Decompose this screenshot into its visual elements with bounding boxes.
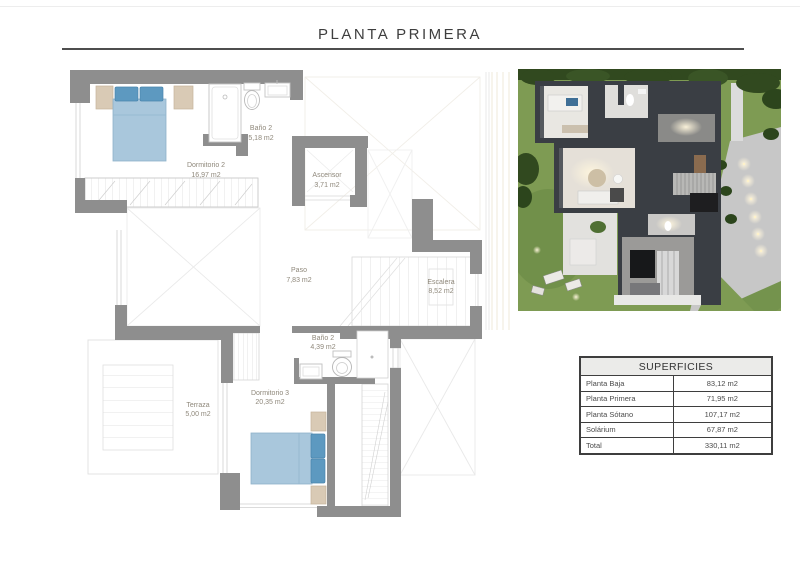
table-header-row: SUPERFICIES xyxy=(580,357,772,376)
pillow xyxy=(311,434,325,458)
surface-label: Planta Baja xyxy=(580,376,673,392)
surface-value: 83,12 m2 xyxy=(673,376,772,392)
title-divider xyxy=(62,48,744,50)
bathroom2-top-fixtures xyxy=(209,80,290,142)
table-row: Planta Baja 83,12 m2 xyxy=(580,376,772,392)
stairs xyxy=(340,257,478,326)
nightstand xyxy=(311,486,326,504)
render-3d-aerial xyxy=(518,69,781,311)
page-top-edge xyxy=(0,6,800,7)
nightstand xyxy=(96,86,113,109)
render-pendant-lamp xyxy=(614,175,623,184)
wardrobes xyxy=(85,178,388,506)
pillow xyxy=(311,459,325,483)
table-row: Planta Sótano 107,17 m2 xyxy=(580,407,772,423)
facade-strips xyxy=(486,72,509,330)
render-toilet xyxy=(665,221,672,231)
superficies-table-title: SUPERFICIES xyxy=(580,357,772,376)
floor-plan: Dormitorio 2 16,97 m2 Baño 2 5,18 m2 Asc… xyxy=(60,62,520,522)
surface-label: Planta Sótano xyxy=(580,407,673,423)
room-area-dormitorio2: 16,97 m2 xyxy=(191,172,220,179)
room-label-escalera: Escalera xyxy=(427,279,454,286)
room-label-dormitorio3: Dormitorio 3 xyxy=(251,390,289,397)
render-toilet xyxy=(626,94,634,106)
render-wardrobe xyxy=(630,250,655,278)
room-label-bano2-top: Baño 2 xyxy=(250,125,272,132)
nightstand xyxy=(311,412,326,431)
surface-label: Solárium xyxy=(580,422,673,438)
bed-dormitorio3 xyxy=(251,412,326,504)
room-label-ascensor: Ascensor xyxy=(312,172,342,179)
pillow xyxy=(115,87,138,101)
room-area-bano2-bottom: 4,39 m2 xyxy=(310,344,335,351)
shower-tray xyxy=(209,84,241,142)
surface-value: 71,95 m2 xyxy=(673,391,772,407)
render-plant xyxy=(590,221,606,233)
surface-label: Planta Primera xyxy=(580,391,673,407)
bed-dormitorio2 xyxy=(96,86,193,161)
page-title: PLANTA PRIMERA xyxy=(0,26,800,43)
room-area-ascensor: 3,71 m2 xyxy=(314,182,339,189)
room-area-bano2-top: 5,18 m2 xyxy=(248,135,273,142)
render-stairs xyxy=(673,173,716,195)
room-area-terraza: 5,00 m2 xyxy=(185,411,210,418)
table-row: Planta Primera 71,95 m2 xyxy=(580,391,772,407)
table-row: Total 330,11 m2 xyxy=(580,438,772,454)
surface-value: 67,87 m2 xyxy=(673,422,772,438)
room-area-dormitorio3: 20,35 m2 xyxy=(255,399,284,406)
nightstand xyxy=(174,86,193,109)
room-label-paso: Paso xyxy=(291,267,307,274)
table-row: Solárium 67,87 m2 xyxy=(580,422,772,438)
shower-tray xyxy=(357,331,388,378)
surface-value: 107,17 m2 xyxy=(673,407,772,423)
room-label-terraza: Terraza xyxy=(186,402,209,409)
toilet-icon xyxy=(245,91,260,110)
room-label-bano2-bottom: Baño 2 xyxy=(312,335,334,342)
toilet-tank xyxy=(333,351,351,357)
surface-label: Total xyxy=(580,438,673,454)
room-area-paso: 7,83 m2 xyxy=(286,277,311,284)
bed-body xyxy=(113,99,166,161)
toilet-tank xyxy=(244,83,260,90)
room-label-dormitorio2: Dormitorio 2 xyxy=(187,162,225,169)
render-rug xyxy=(588,169,606,187)
superficies-table: SUPERFICIES Planta Baja 83,12 m2 Planta … xyxy=(579,356,773,455)
render-cabinet xyxy=(694,155,706,176)
document-page: PLANTA PRIMERA xyxy=(0,0,800,566)
pillow xyxy=(140,87,163,101)
surface-value: 330,11 m2 xyxy=(673,438,772,454)
bed-body xyxy=(251,433,312,484)
room-area-escalera: 8,52 m2 xyxy=(428,288,453,295)
